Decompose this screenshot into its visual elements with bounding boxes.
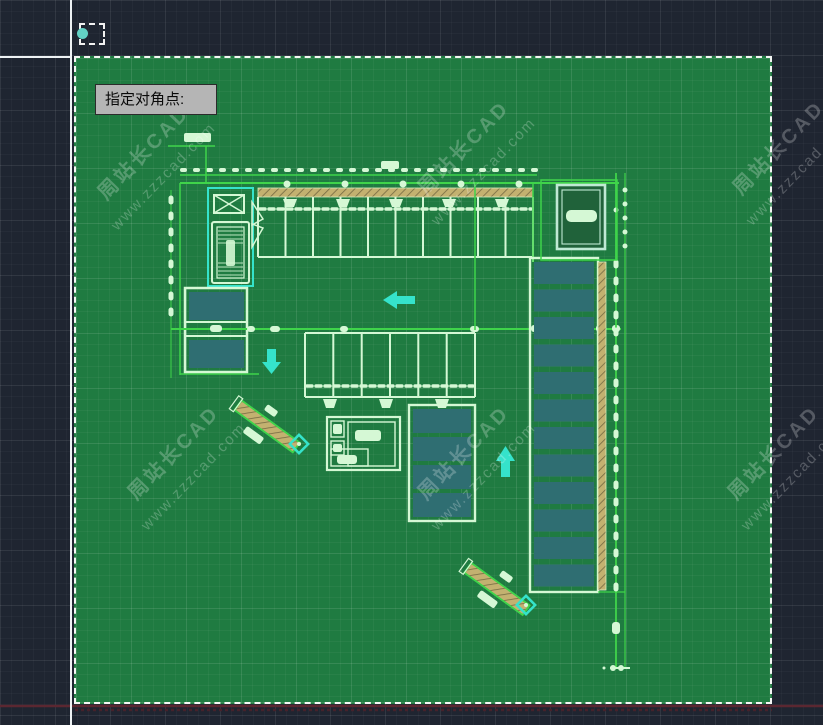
crossing-selection-region (74, 56, 772, 704)
red-baseline (0, 706, 823, 710)
snap-dot-icon (77, 28, 88, 39)
dynamic-input-tooltip: 指定对角点: (95, 84, 217, 115)
autocad-viewport[interactable]: { "prompt": { "tooltip": "指定对角点:" }, "wa… (0, 0, 823, 725)
crosshair-vertical-line (70, 0, 72, 725)
crosshair-horizontal-line (0, 56, 72, 58)
selection-cursor-icon (79, 23, 105, 45)
